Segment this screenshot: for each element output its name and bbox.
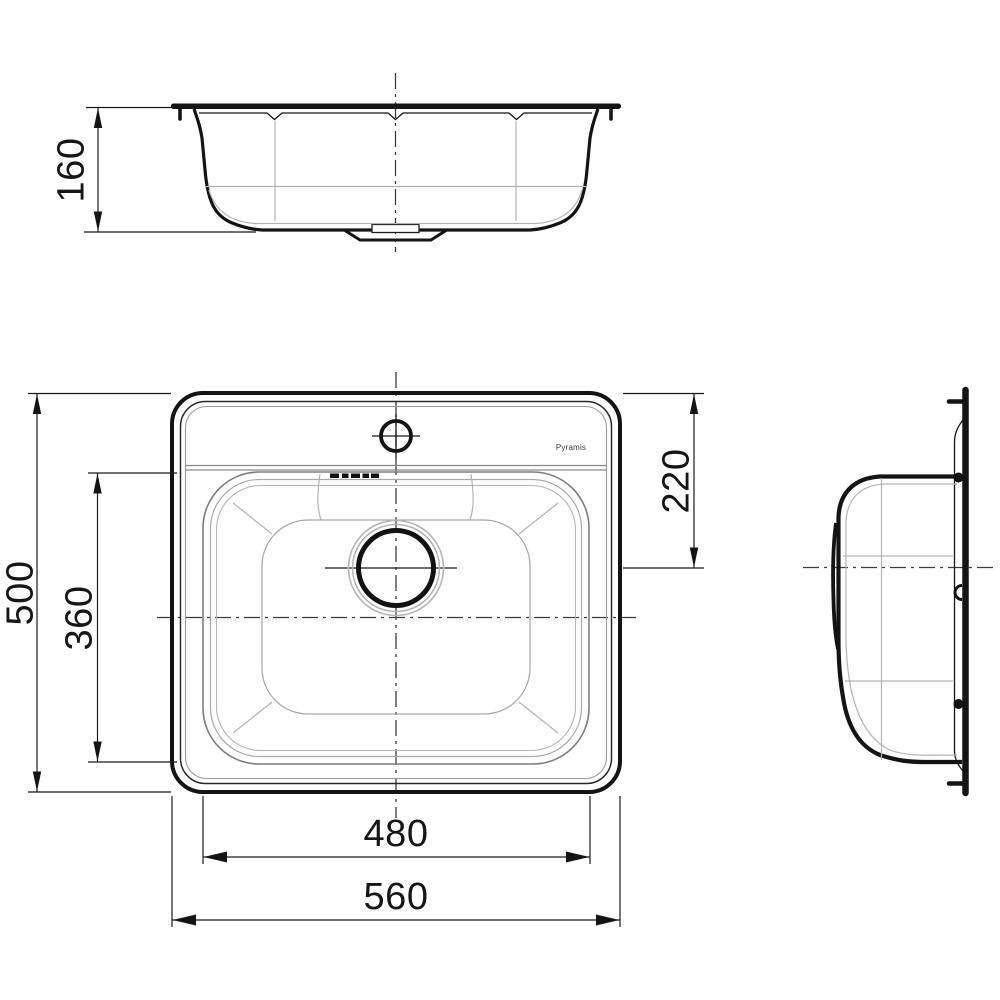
drain [325,521,457,616]
dim-560-label: 560 [364,876,429,918]
dim-360-arrow-up [93,474,101,494]
overflow-slot [351,474,360,479]
dim-360-label: 360 [58,586,100,651]
overflow-slot [330,474,339,479]
side-clip-bottom [954,699,964,709]
side-view [803,390,996,793]
dim-360-arrow-down [93,742,101,762]
dim-500-label: 500 [0,561,41,626]
dim-220-arrow-up [690,394,698,414]
overflow-slots [330,474,379,479]
dim-160-arrow-down [94,212,102,232]
faucet-hole [372,414,420,459]
plan-view: Pyramis [0,372,704,927]
dim-480-arrow-right [566,852,590,863]
overflow-slot [363,474,370,479]
dim-220-label: 220 [655,449,697,514]
dim-560-arrow-right [596,915,620,926]
front-elevation-view: 160 [50,73,621,252]
front-drain-plate [372,225,419,233]
overflow-slot [342,474,349,479]
overflow-slot [371,474,379,479]
side-bowl-outline [839,477,963,763]
dim-560-arrow-left [173,915,197,926]
side-bowl-inner-line [846,484,957,755]
dim-220-arrow-down [690,548,698,568]
front-rim-bar [171,104,621,110]
dim-480-arrow-left [204,852,228,863]
sink-technical-drawing-page: 160 Pyramis [0,0,1000,1000]
dim-480-label: 480 [364,813,429,855]
side-clip-middle [955,586,962,600]
dim-160-label: 160 [50,138,92,203]
side-clip-top [954,473,964,483]
sink-technical-drawing: 160 Pyramis [0,0,1000,1000]
dim-500-arrow-down [33,772,41,792]
brand-logo: Pyramis [556,443,586,452]
dim-500-arrow-up [33,394,41,414]
dimension-480: 480 [203,796,590,864]
dimension-220: 220 [623,394,704,569]
dim-160-arrow-up [94,108,102,128]
